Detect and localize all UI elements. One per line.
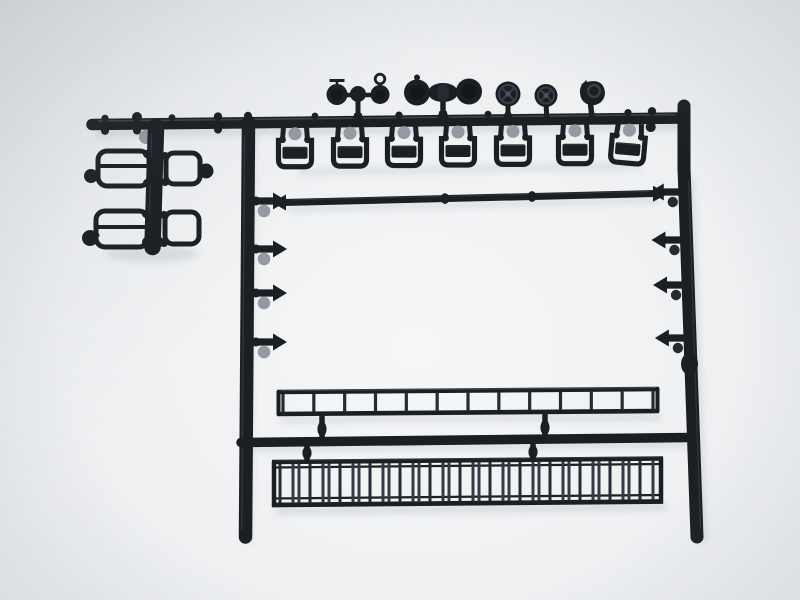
step-tread [392,146,417,158]
joint-ball [160,239,168,247]
left-loop [98,151,149,186]
lamp-hub-dot [544,93,549,98]
left-disc-inner [331,89,343,101]
step-tread [501,144,526,156]
post-base [437,111,450,121]
hub-ridge [437,84,449,102]
rail-nub [214,112,222,120]
joint-ball [160,211,168,219]
gate-drip [344,127,357,140]
extension-ladder [272,443,663,507]
ladder-rail [272,495,663,498]
gate-stub-left [252,334,288,359]
gate-drip [452,125,465,138]
post-base [352,113,364,122]
right-runner-knuckle [681,353,698,375]
ring-handle [375,74,385,84]
stirrup-step [442,125,475,165]
knob-stem [94,234,99,236]
twin-disc-signal-large [404,75,482,121]
rail-nub [169,114,176,121]
right-disc-inner [375,90,385,100]
gate-drip [258,297,271,310]
left-disc-nub [414,75,420,81]
pole-collar [441,193,449,204]
joint-ball [142,210,150,218]
rail-nub [624,109,631,116]
step-tread [563,144,588,156]
footboard-part [82,210,199,248]
pole-collar [528,191,536,202]
gate-drip [569,124,582,137]
gate-drip [668,197,678,207]
gate-drip [258,346,271,359]
rail-nub [133,126,141,134]
step-tread [283,147,308,159]
stirrup-step [334,126,367,166]
gate-drip [673,343,683,353]
gate-drip [398,126,411,139]
gate-drip [258,205,271,218]
rail-nub [395,112,402,119]
joint-ball [161,178,169,186]
post-base [503,113,514,122]
step-tread [338,146,363,158]
gate-drip [258,253,271,266]
right-disc-inner [462,84,477,99]
left-disc-inner [410,85,425,100]
rail-nub [214,126,222,134]
rail-nub [312,113,319,120]
rail-nub [244,112,252,120]
joint-ball [142,240,150,248]
gate-stub-left [252,285,288,310]
stirrup-step [497,124,530,164]
post [591,104,593,121]
bottom-runner [241,438,689,443]
gate-drip [289,127,302,140]
rail-nub [485,111,492,118]
right-loop [165,212,199,244]
rail-nub [101,115,108,122]
single-ladder [277,388,659,438]
center-bar [153,127,157,247]
rail-nub [648,107,656,115]
rail-nub [101,127,109,135]
joint-ball [143,150,151,158]
left-vertical-runner [246,122,249,537]
stirrup-step [559,124,592,164]
joint-ball [143,179,151,187]
joint-ball [161,152,169,160]
footboard-part [84,150,214,187]
right-loop [166,153,200,184]
lamp-hub-dot [505,91,510,96]
gate-drip [671,290,681,300]
ladder-rail [272,464,663,467]
stirrup-step [279,127,312,167]
rail-nub [132,112,142,122]
hub-disc [350,86,366,102]
gate-drip [669,245,679,255]
knob-stem [198,170,204,171]
gate-drip [507,125,520,138]
footboard-assembly [82,127,214,249]
step-tread [446,145,471,157]
twin-disc-signal-small [327,74,390,122]
stirrup-step [610,119,656,166]
stirrup-step [388,126,421,166]
ladder-rail [277,411,659,414]
sprue-photo [0,0,800,600]
photo-canvas [0,0,800,600]
gate-stub-left [252,241,288,266]
left-knob [82,230,98,246]
